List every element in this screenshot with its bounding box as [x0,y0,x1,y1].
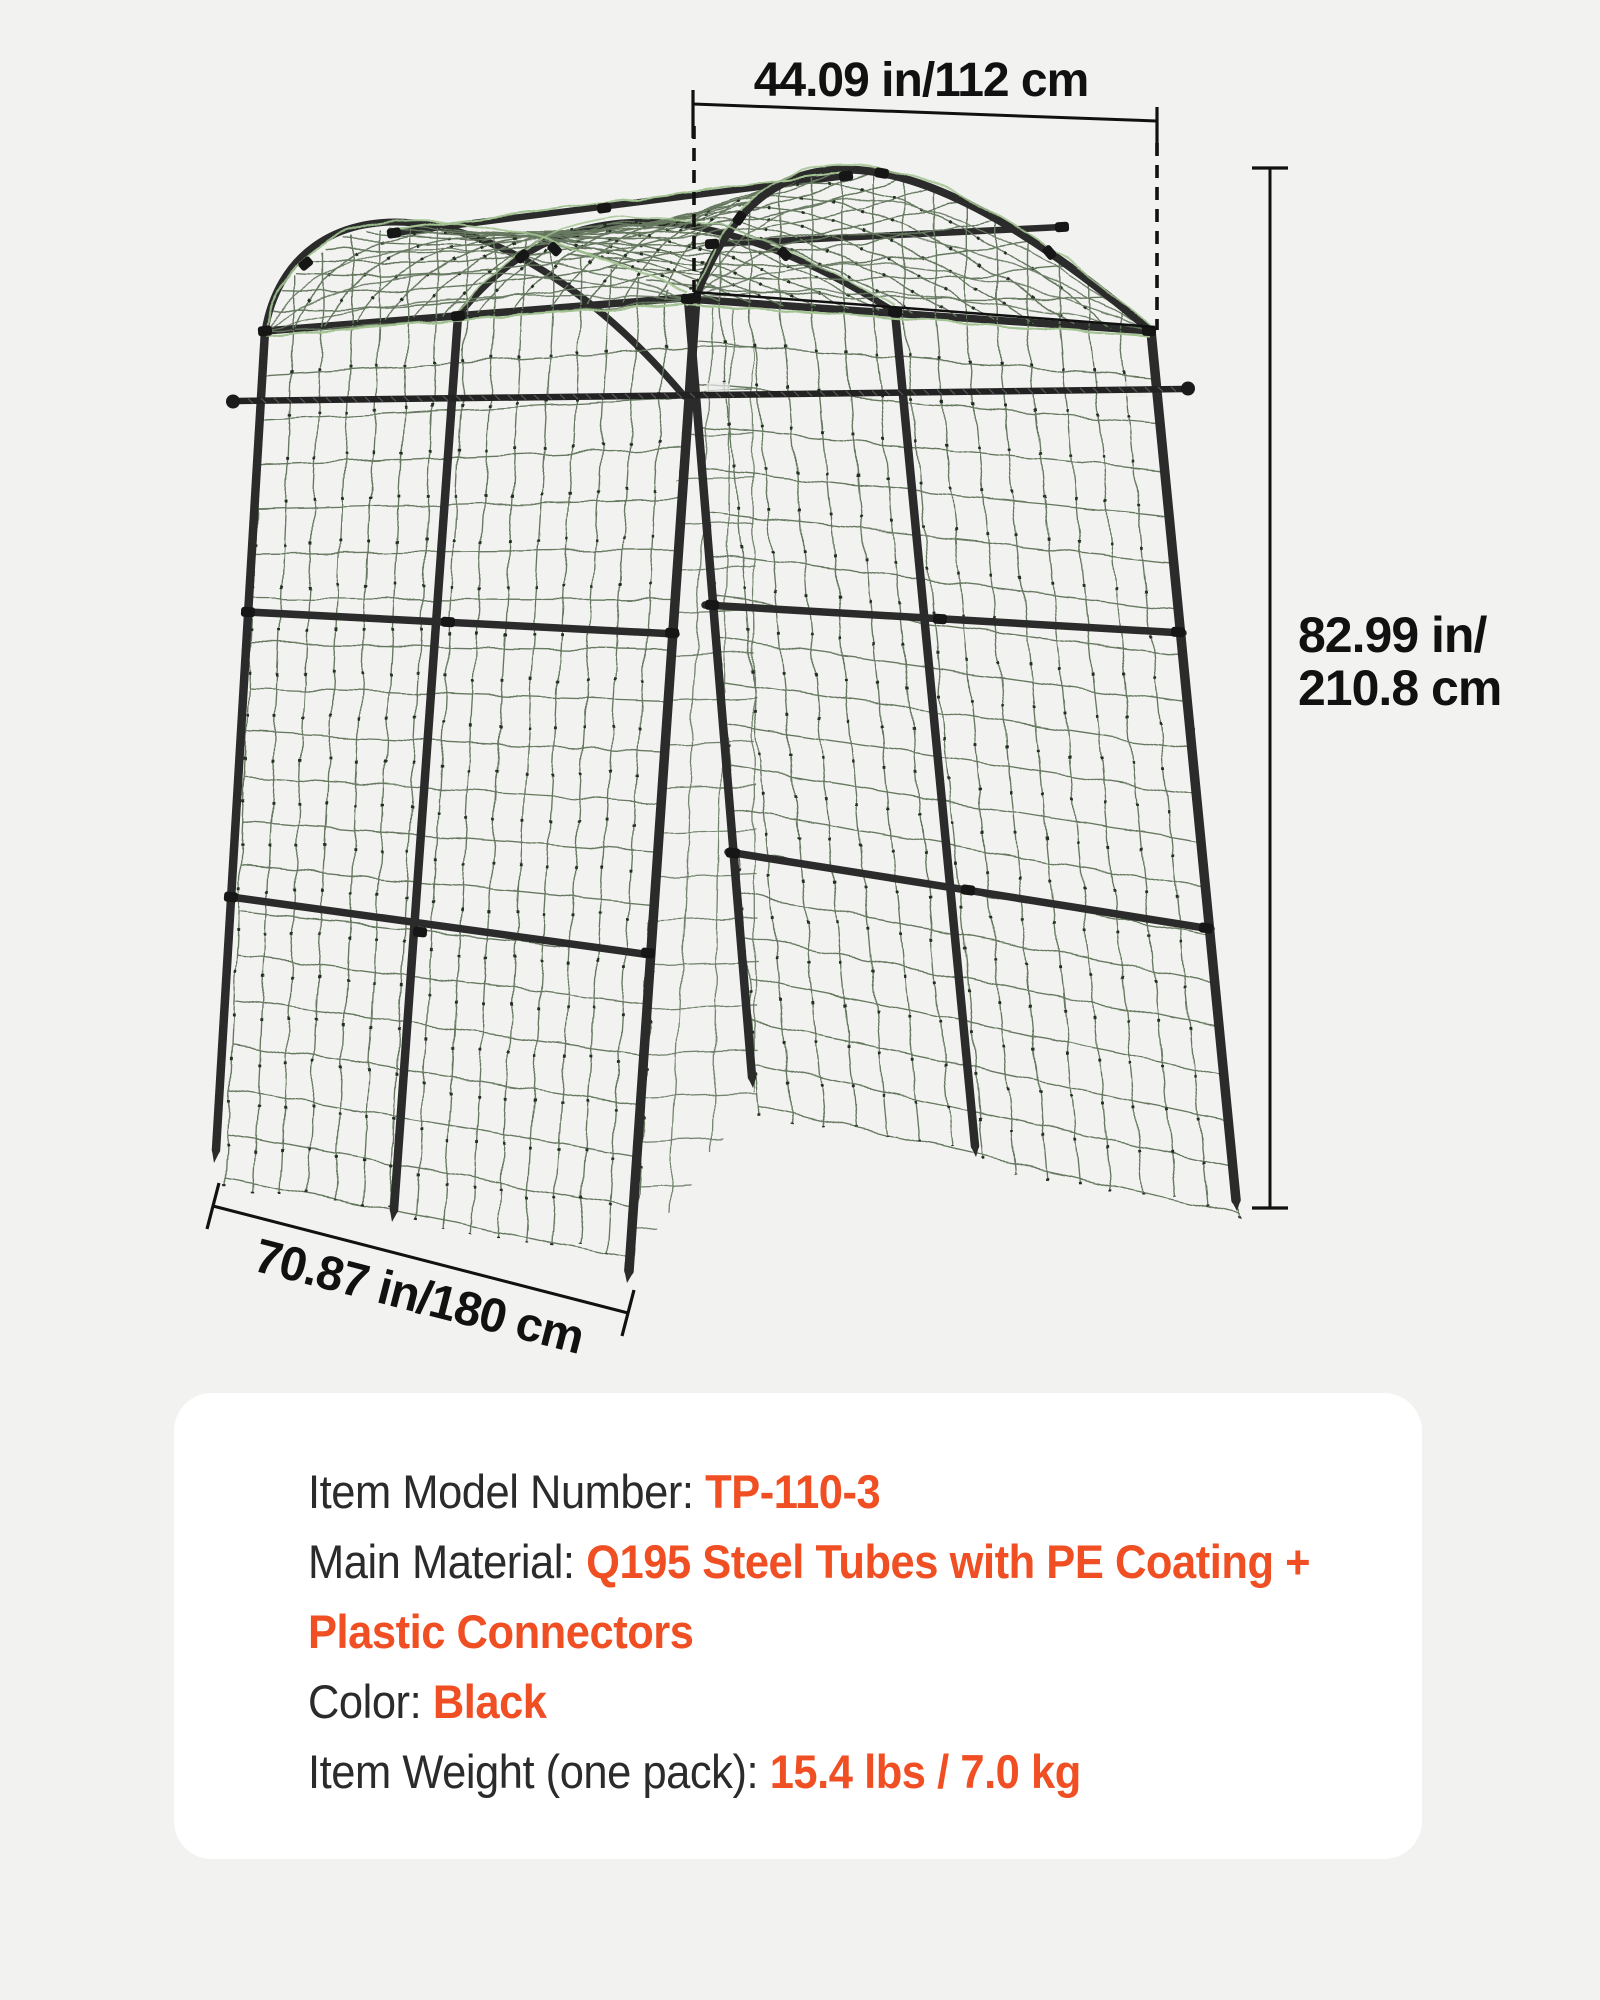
svg-text:82.99 in/: 82.99 in/ [1298,607,1487,663]
svg-text:210.8 cm: 210.8 cm [1298,660,1501,716]
svg-text:44.09 in/112 cm: 44.09 in/112 cm [754,54,1089,107]
